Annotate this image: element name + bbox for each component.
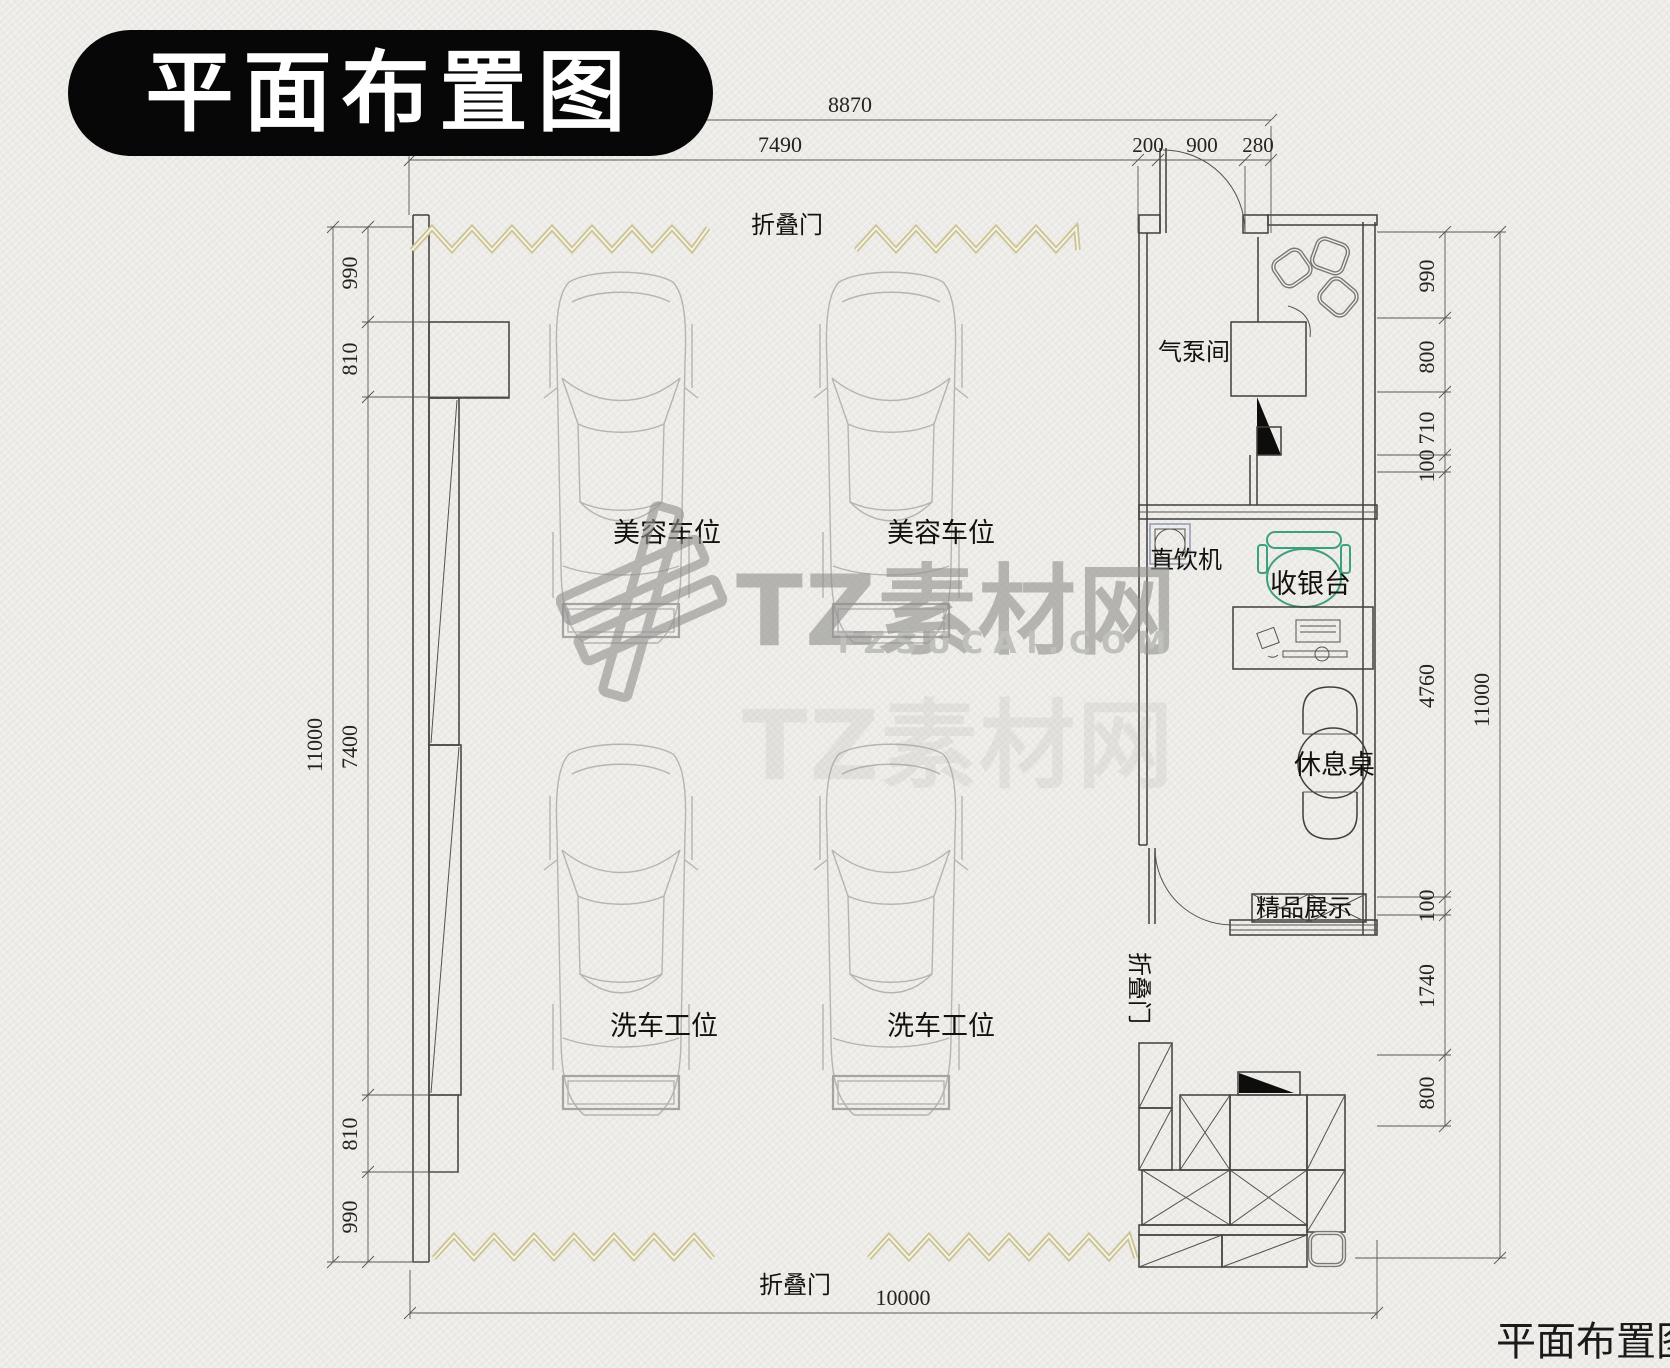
folding-door-bottom-label: 折叠门 xyxy=(759,1271,831,1299)
cashier-desk xyxy=(1233,607,1373,669)
dim-left-seg-4: 990 xyxy=(337,1201,362,1234)
dim-right-seg-5: 100 xyxy=(1414,890,1439,923)
rest-table-label: 休息桌 xyxy=(1294,750,1375,781)
reception-door xyxy=(1149,848,1232,925)
pump-room: 气泵间 xyxy=(1158,237,1306,505)
dim-left-seg-3: 810 xyxy=(337,1118,362,1151)
beauty-bay-2-label: 美容车位 xyxy=(887,518,995,549)
entry-door-top xyxy=(1160,148,1245,233)
dim-top-900: 900 xyxy=(1186,133,1218,157)
dim-right-seg-1: 800 xyxy=(1414,341,1439,374)
dim-right-seg-2: 710 xyxy=(1414,412,1439,445)
corner-title: 平面布置图 xyxy=(1496,1319,1670,1364)
water-dispenser: 直饮机 xyxy=(1150,524,1222,574)
wash-bay-2-label: 洗车工位 xyxy=(887,1011,995,1042)
boutique-display-cabinet: 精品展示 xyxy=(1252,894,1366,922)
dim-right-overall: 11000 xyxy=(1469,673,1494,727)
dim-top-280: 280 xyxy=(1242,133,1274,157)
dim-top-200: 200 xyxy=(1132,133,1164,157)
title-badge: 平面布置图 xyxy=(68,30,713,156)
cashier-label: 收银台 xyxy=(1270,569,1351,600)
dim-right-seg-6: 1740 xyxy=(1414,964,1439,1008)
dim-right-seg-3: 100 xyxy=(1414,450,1439,483)
folding-door-top: 折叠门 xyxy=(412,211,1078,250)
dim-top-inner: 7490 xyxy=(758,132,802,157)
car-wash-bay-1 xyxy=(544,744,698,1115)
dim-left-seg-0: 990 xyxy=(337,257,362,290)
boutique-display-label: 精品展示 xyxy=(1256,894,1352,922)
wash-bay-1-label: 洗车工位 xyxy=(610,1011,718,1042)
dim-top-overall: 8870 xyxy=(828,92,872,117)
floor-plan-drawing: 折叠门 折叠门 折叠门 xyxy=(0,0,1670,1368)
dim-right-seg-4: 4760 xyxy=(1414,664,1439,708)
dim-left-seg-1: 810 xyxy=(337,343,362,376)
dim-bottom-overall: 10000 xyxy=(876,1285,931,1310)
car-beauty-bay-2 xyxy=(814,272,968,643)
dim-right-seg-7: 800 xyxy=(1414,1077,1439,1110)
folding-door-side-label: 折叠门 xyxy=(1125,952,1153,1024)
dimension-left: 11000 990 810 7400 810 990 xyxy=(302,221,509,1268)
pump-room-label: 气泵间 xyxy=(1158,338,1230,366)
dim-right-seg-0: 990 xyxy=(1414,260,1439,293)
beauty-bay-1-label: 美容车位 xyxy=(613,518,721,549)
floor-plan-canvas: 折叠门 折叠门 折叠门 xyxy=(0,0,1670,1368)
cashier-area: 收银台 xyxy=(1233,532,1373,669)
wall-left xyxy=(413,215,509,1262)
page-title: 平面布置图 xyxy=(145,49,635,137)
car-wash-bay-2 xyxy=(814,744,968,1115)
car-beauty-bay-1 xyxy=(544,272,698,643)
dim-left-seg-2: 7400 xyxy=(337,725,362,769)
water-dispenser-label: 直饮机 xyxy=(1150,546,1222,574)
dimension-right: 11000 990 800 710 100 4760 100 1740 800 xyxy=(1355,226,1506,1264)
folding-door-bottom: 折叠门 xyxy=(434,1236,1136,1299)
equipment-shelving xyxy=(1139,1043,1345,1267)
folding-door-top-label: 折叠门 xyxy=(751,211,823,239)
dim-left-overall: 11000 xyxy=(302,718,327,772)
